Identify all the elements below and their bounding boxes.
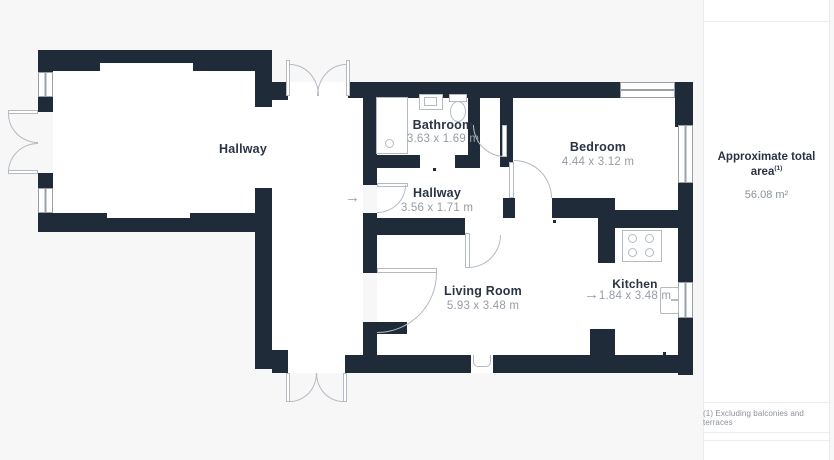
stove-burner bbox=[645, 248, 654, 257]
entry-arrow-icon: → bbox=[345, 190, 360, 205]
room-label-hallway-inner: Hallway bbox=[367, 186, 507, 200]
total-area-block: Approximate total area(1) 56.08 m² bbox=[703, 150, 830, 201]
wall bbox=[38, 50, 53, 72]
wall bbox=[272, 350, 288, 373]
tick bbox=[210, 228, 213, 231]
sidebar-divider bbox=[703, 21, 830, 22]
wall bbox=[675, 82, 693, 127]
wall bbox=[363, 218, 465, 235]
balcony-vent-frame bbox=[473, 355, 491, 367]
sidebar-divider bbox=[703, 440, 830, 441]
window bbox=[38, 188, 53, 213]
tick bbox=[553, 220, 556, 223]
wall bbox=[590, 329, 615, 358]
wall bbox=[38, 97, 53, 112]
footnote-panel: (1) Excluding balconies and terraces bbox=[703, 402, 830, 433]
bottom-door-opening bbox=[288, 355, 345, 373]
wall bbox=[255, 188, 272, 369]
window bbox=[678, 125, 693, 183]
room-label-bedroom: Bedroom bbox=[528, 140, 668, 154]
stove-burner bbox=[645, 234, 654, 243]
stove-burner bbox=[628, 234, 637, 243]
wall-notch bbox=[107, 213, 190, 218]
room-dims-bathroom: 3.63 x 1.69 m bbox=[373, 133, 513, 145]
window bbox=[38, 72, 53, 97]
hallway-main-floor bbox=[53, 63, 255, 218]
tick bbox=[663, 352, 666, 355]
wall-notch bbox=[100, 63, 193, 71]
stove-burner bbox=[628, 248, 637, 257]
tick bbox=[595, 337, 598, 340]
wall bbox=[375, 155, 420, 168]
total-area-value: 56.08 m² bbox=[703, 189, 830, 201]
bathroom-sink-basin bbox=[424, 97, 437, 106]
floorplan-page: → → Hallway Bathroom 3.63 x 1.69 m Hallw… bbox=[0, 0, 834, 460]
corridor-floor bbox=[272, 96, 363, 355]
door-leaf bbox=[343, 373, 347, 402]
total-area-title: Approximate total area(1) bbox=[703, 150, 830, 180]
tick bbox=[650, 221, 653, 224]
door-arc bbox=[316, 373, 343, 402]
wall bbox=[38, 173, 53, 188]
door-arc bbox=[8, 114, 38, 143]
wall bbox=[612, 210, 678, 228]
room-label-hallway-main: Hallway bbox=[173, 142, 313, 156]
door-arc bbox=[290, 373, 317, 402]
wall bbox=[363, 322, 377, 373]
door-arc bbox=[8, 143, 38, 172]
room-dims-kitchen: 1.84 x 3.48 m bbox=[565, 290, 705, 302]
room-dims-bedroom: 4.44 x 3.12 m bbox=[528, 156, 668, 168]
window bbox=[620, 82, 675, 98]
door-arc bbox=[290, 64, 319, 96]
wall bbox=[348, 82, 620, 98]
wall bbox=[255, 50, 272, 107]
wall bbox=[598, 198, 615, 263]
door-arc bbox=[317, 64, 346, 96]
tick bbox=[428, 90, 431, 93]
footnote-text: (1) Excluding balconies and terraces bbox=[703, 409, 830, 427]
tick bbox=[512, 93, 515, 96]
door-leaf bbox=[346, 60, 350, 96]
wall bbox=[678, 183, 693, 282]
room-dims-living-room: 5.93 x 3.48 m bbox=[413, 300, 553, 312]
tick bbox=[433, 168, 436, 171]
total-area-footnote-marker: (1) bbox=[774, 165, 782, 172]
room-label-kitchen: Kitchen bbox=[565, 277, 705, 291]
room-label-bathroom: Bathroom bbox=[373, 118, 513, 132]
info-sidebar bbox=[703, 0, 830, 460]
room-label-living-room: Living Room bbox=[413, 284, 553, 298]
tick bbox=[570, 361, 573, 364]
room-dims-hallway-inner: 3.56 x 1.71 m bbox=[367, 202, 507, 214]
tick bbox=[210, 52, 213, 55]
